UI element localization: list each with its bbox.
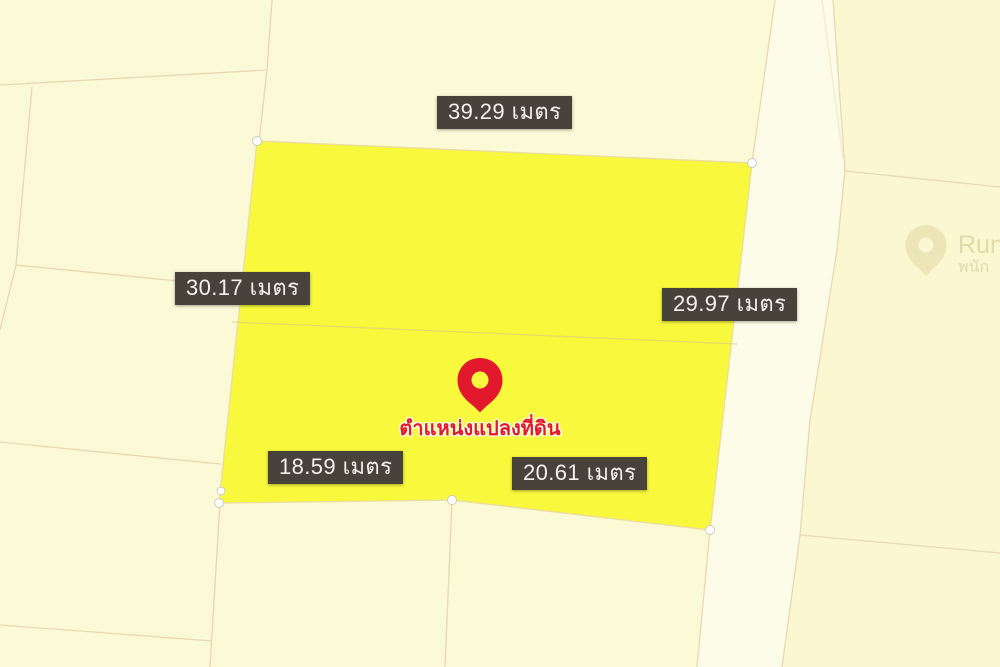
measurement-badge-left: 30.17 เมตร <box>175 272 310 305</box>
vertex-marker <box>215 499 224 508</box>
map-canvas[interactable]: 39.29 เมตร 30.17 เมตร 29.97 เมตร 18.59 เ… <box>0 0 1000 667</box>
watermark-line2: พนัก <box>958 260 1000 276</box>
measurement-badge-right: 29.97 เมตร <box>662 288 797 321</box>
vertex-marker <box>448 496 457 505</box>
watermark-text: Run พนัก <box>958 233 1000 276</box>
pin-hole <box>472 372 489 389</box>
vertex-marker <box>217 487 225 495</box>
vertex-marker <box>706 526 715 535</box>
measurement-badge-bottom-left: 18.59 เมตร <box>268 451 403 484</box>
measurement-badge-bottom-right: 20.61 เมตร <box>512 457 647 490</box>
vertex-marker <box>253 137 262 146</box>
watermark-line1: Run <box>958 233 1000 258</box>
measurement-badge-top: 39.29 เมตร <box>437 96 572 129</box>
plot-location-label: ตำแหน่งแปลงที่ดิน <box>392 412 568 444</box>
vertex-marker <box>748 159 757 168</box>
